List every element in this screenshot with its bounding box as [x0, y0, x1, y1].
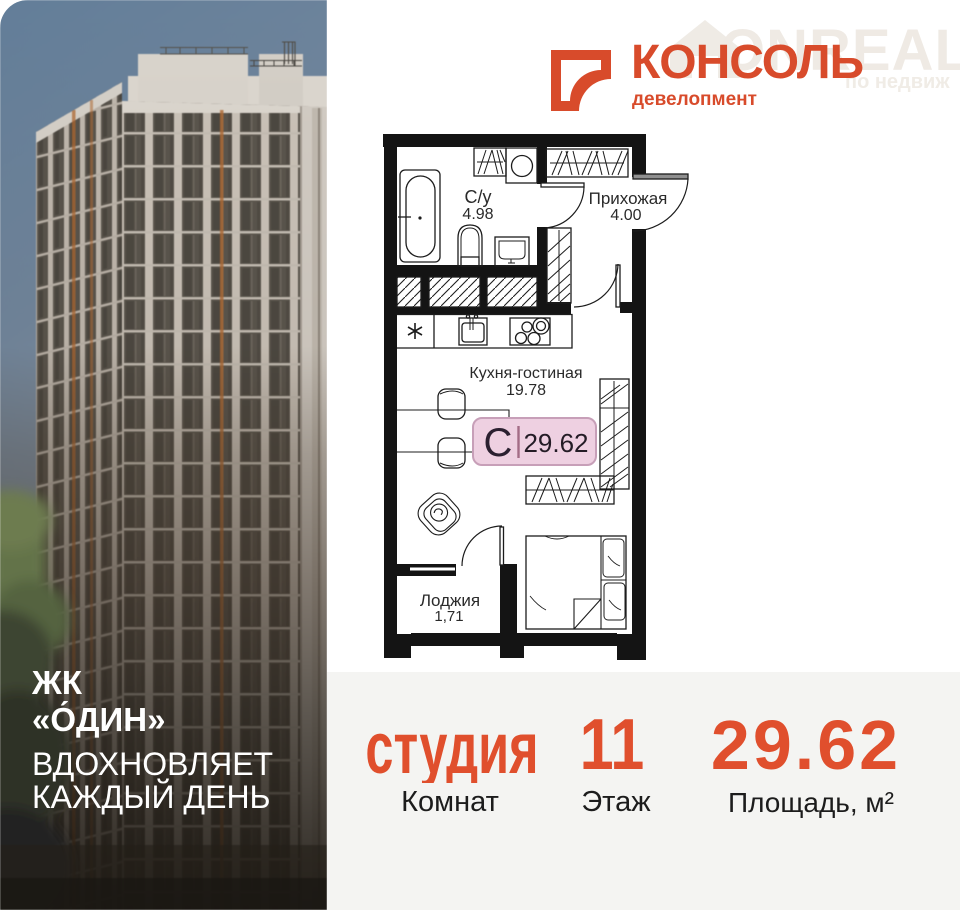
svg-text:С: С [484, 421, 513, 465]
svg-text:Кухня-гостиная: Кухня-гостиная [469, 365, 582, 382]
svg-text:Прихожая: Прихожая [589, 189, 668, 208]
svg-text:4.98: 4.98 [462, 206, 493, 223]
svg-text:С/у: С/у [465, 187, 492, 207]
svg-text:19.78: 19.78 [506, 382, 546, 399]
svg-text:29.62: 29.62 [523, 428, 588, 458]
svg-text:4.00: 4.00 [610, 207, 641, 224]
svg-text:1,71: 1,71 [434, 608, 463, 625]
